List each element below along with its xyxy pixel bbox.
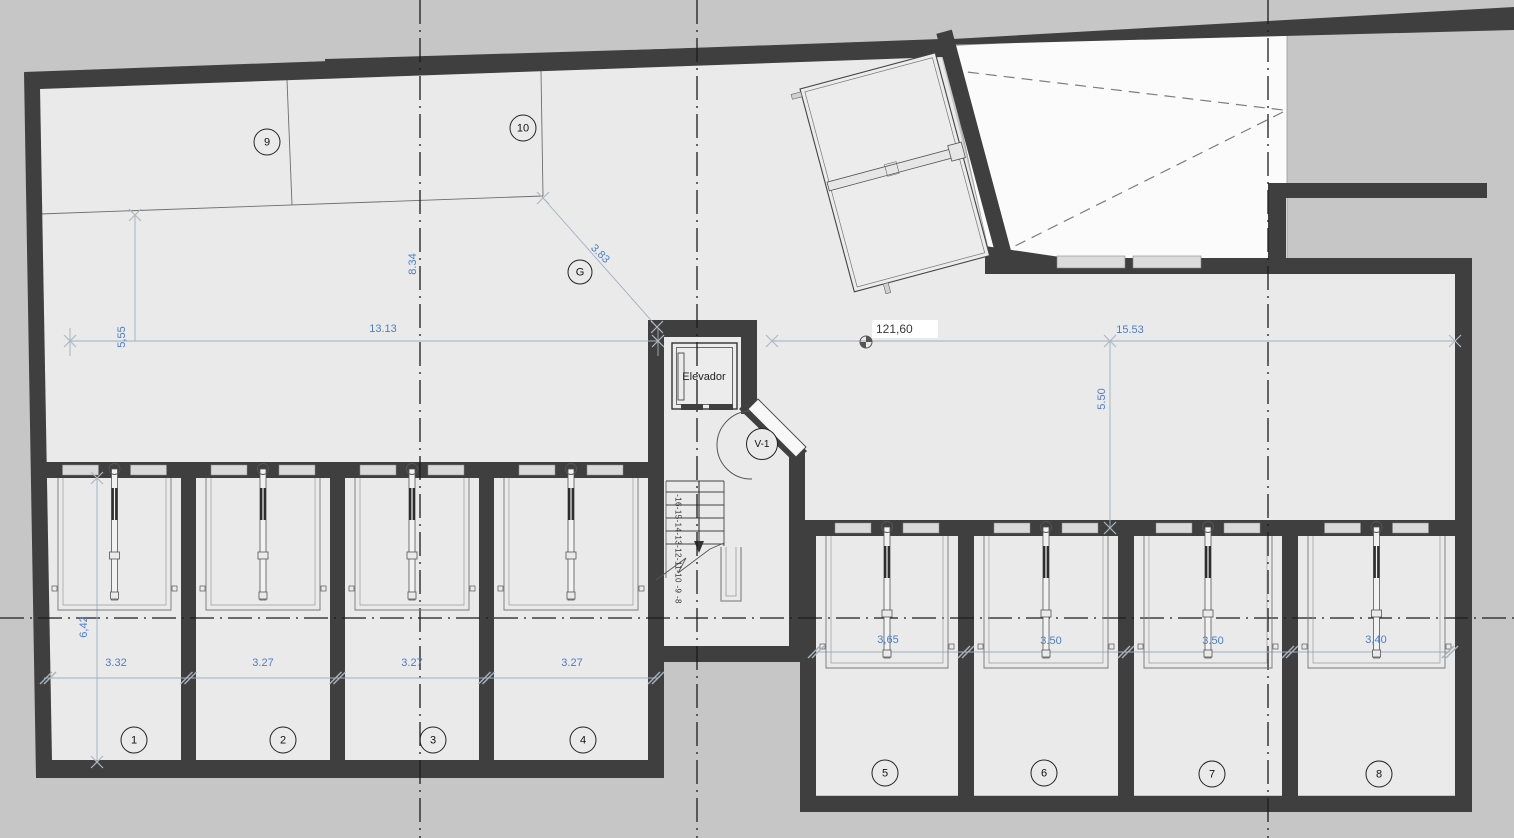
space-label-1: 1 [121, 727, 148, 754]
space-label-9: 9 [254, 129, 281, 156]
dim-unit-depth: 6,42 [78, 616, 90, 637]
dim-unit-4: 3.27 [561, 657, 582, 669]
space-label-8: 8 [1366, 761, 1393, 788]
dim-right-height: 5.50 [1096, 388, 1108, 409]
grid-label-g: G [568, 260, 593, 285]
space-label-6: 6 [1031, 760, 1058, 787]
floor-plan-page: 5,55 13.13 8.34 3.83 15.53 5.50 6,42 3.3… [0, 0, 1514, 838]
dim-left-width: 13.13 [369, 323, 397, 335]
floor-plan-drawing [0, 0, 1514, 838]
dim-unit-3: 3.27 [401, 657, 422, 669]
dim-unit-1: 3.32 [105, 657, 126, 669]
dim-unit-8: 3,40 [1365, 634, 1386, 646]
dim-unit-2: 3.27 [252, 657, 273, 669]
stair-numbering: -16-15-14-13-12-11-10 -9 -8 [674, 494, 683, 604]
space-label-10: 10 [510, 115, 537, 142]
dim-unit-5: 3,65 [877, 634, 898, 646]
space-label-4: 4 [570, 727, 597, 754]
dim-grid-span: 8.34 [407, 253, 419, 274]
dim-unit-6: 3.50 [1040, 635, 1061, 647]
door-label-v1: V-1 [746, 428, 778, 460]
space-label-3: 3 [420, 727, 447, 754]
dim-right-width: 15.53 [1116, 324, 1144, 336]
space-label-7: 7 [1199, 761, 1226, 788]
space-label-2: 2 [270, 727, 297, 754]
space-label-5: 5 [872, 760, 899, 787]
dim-left-height: 5,55 [116, 326, 128, 347]
elevator-label: Elevador [682, 371, 725, 383]
level-marker-value: 121,60 [872, 320, 938, 338]
level-marker [860, 336, 872, 348]
dim-unit-7: 3.50 [1202, 635, 1223, 647]
